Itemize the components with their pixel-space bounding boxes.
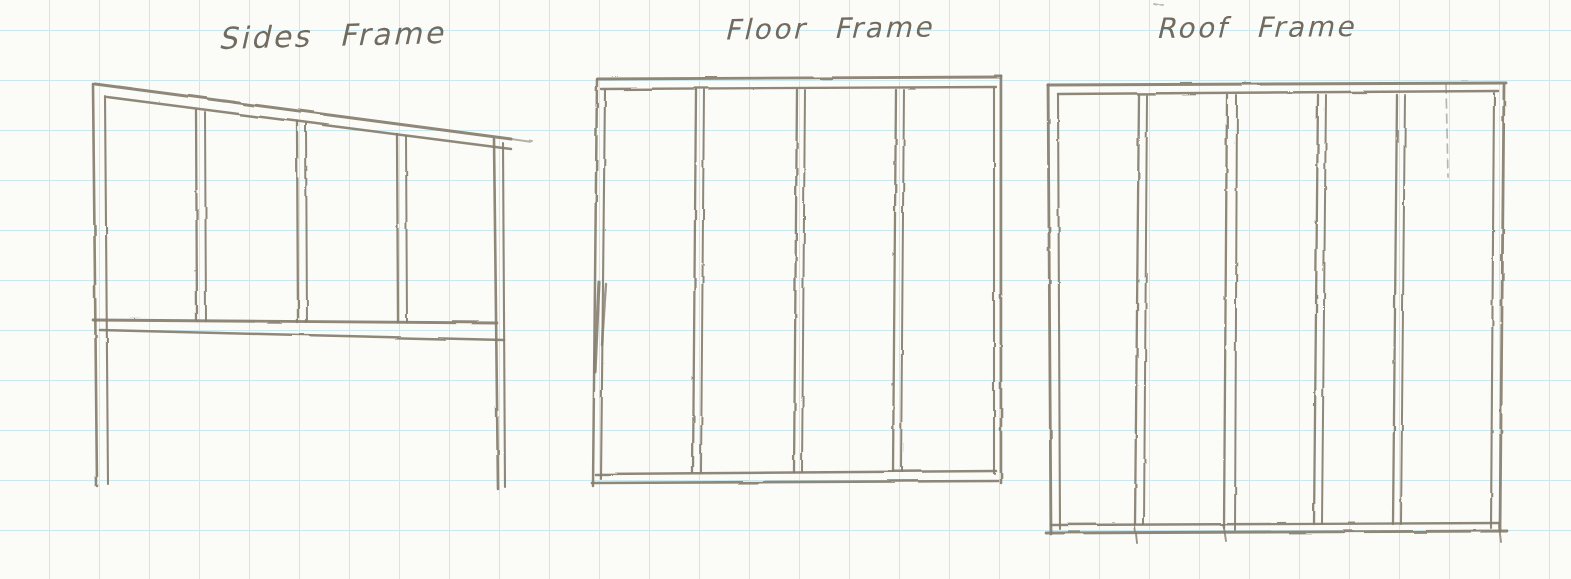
sides-frame-stroke [406,136,407,322]
roof-frame-stroke [1322,95,1326,524]
roof-frame-stroke [1144,95,1147,524]
roof-frame-stroke [1058,91,1498,94]
sketch-svg [0,0,1571,579]
roof-frame-stroke [1048,85,1051,534]
floor-frame-stroke [701,90,704,472]
graph-paper: Sides Frame Floor Frame Roof Frame [0,0,1571,579]
roof-frame-stroke [1314,95,1318,524]
roof-frame-stroke [1046,531,1507,533]
sides-frame-stroke [297,122,298,322]
sides-frame-stroke [105,96,108,484]
roof-frame-stroke [1051,523,1499,525]
floor-frame-stroke [893,90,896,472]
roof-frame-stroke [1135,95,1139,524]
roof-frame-stroke [1401,95,1405,524]
sides-frame-stroke [503,143,505,487]
floor-frame-stroke [601,90,605,479]
sides-frame-stroke [397,134,398,322]
roof-frame-stroke [1058,94,1060,529]
floor-frame-stroke [802,90,805,472]
roof-frame-stroke [1224,95,1227,528]
floor-frame [592,77,1001,486]
roof-frame-stroke [1446,84,1448,177]
sides-frame-stroke [306,124,307,322]
roof-frame-stroke [1135,524,1137,543]
sides-frame-stroke [93,84,97,486]
floor-frame-stroke [794,90,797,472]
roof-frame [1046,4,1507,543]
sides-frame-stroke [196,110,197,321]
pencil-strokes [93,4,1507,543]
floor-frame-stroke [601,87,996,89]
sides-frame-stroke [100,330,504,340]
roof-frame-stroke [1500,85,1504,531]
roof-frame-stroke [1235,95,1237,530]
sides-frame-stroke [511,139,532,142]
roof-frame-stroke [1224,528,1226,541]
sides-frame [93,84,532,489]
roof-frame-stroke [1393,95,1397,524]
sides-frame-stroke [93,320,497,323]
sides-frame-stroke [95,84,511,139]
sides-frame-stroke [205,112,206,321]
floor-frame-stroke [596,471,996,474]
roof-frame-stroke [1048,83,1506,85]
roof-frame-stroke [1491,93,1494,528]
floor-frame-stroke [598,77,1001,79]
roof-frame-stroke [1154,4,1163,6]
floor-frame-stroke [693,90,696,472]
sides-frame-stroke [494,139,498,489]
sides-frame-stroke [107,97,511,149]
floor-frame-stroke [593,79,597,486]
floor-frame-stroke [901,90,904,472]
floor-frame-stroke [592,481,998,483]
